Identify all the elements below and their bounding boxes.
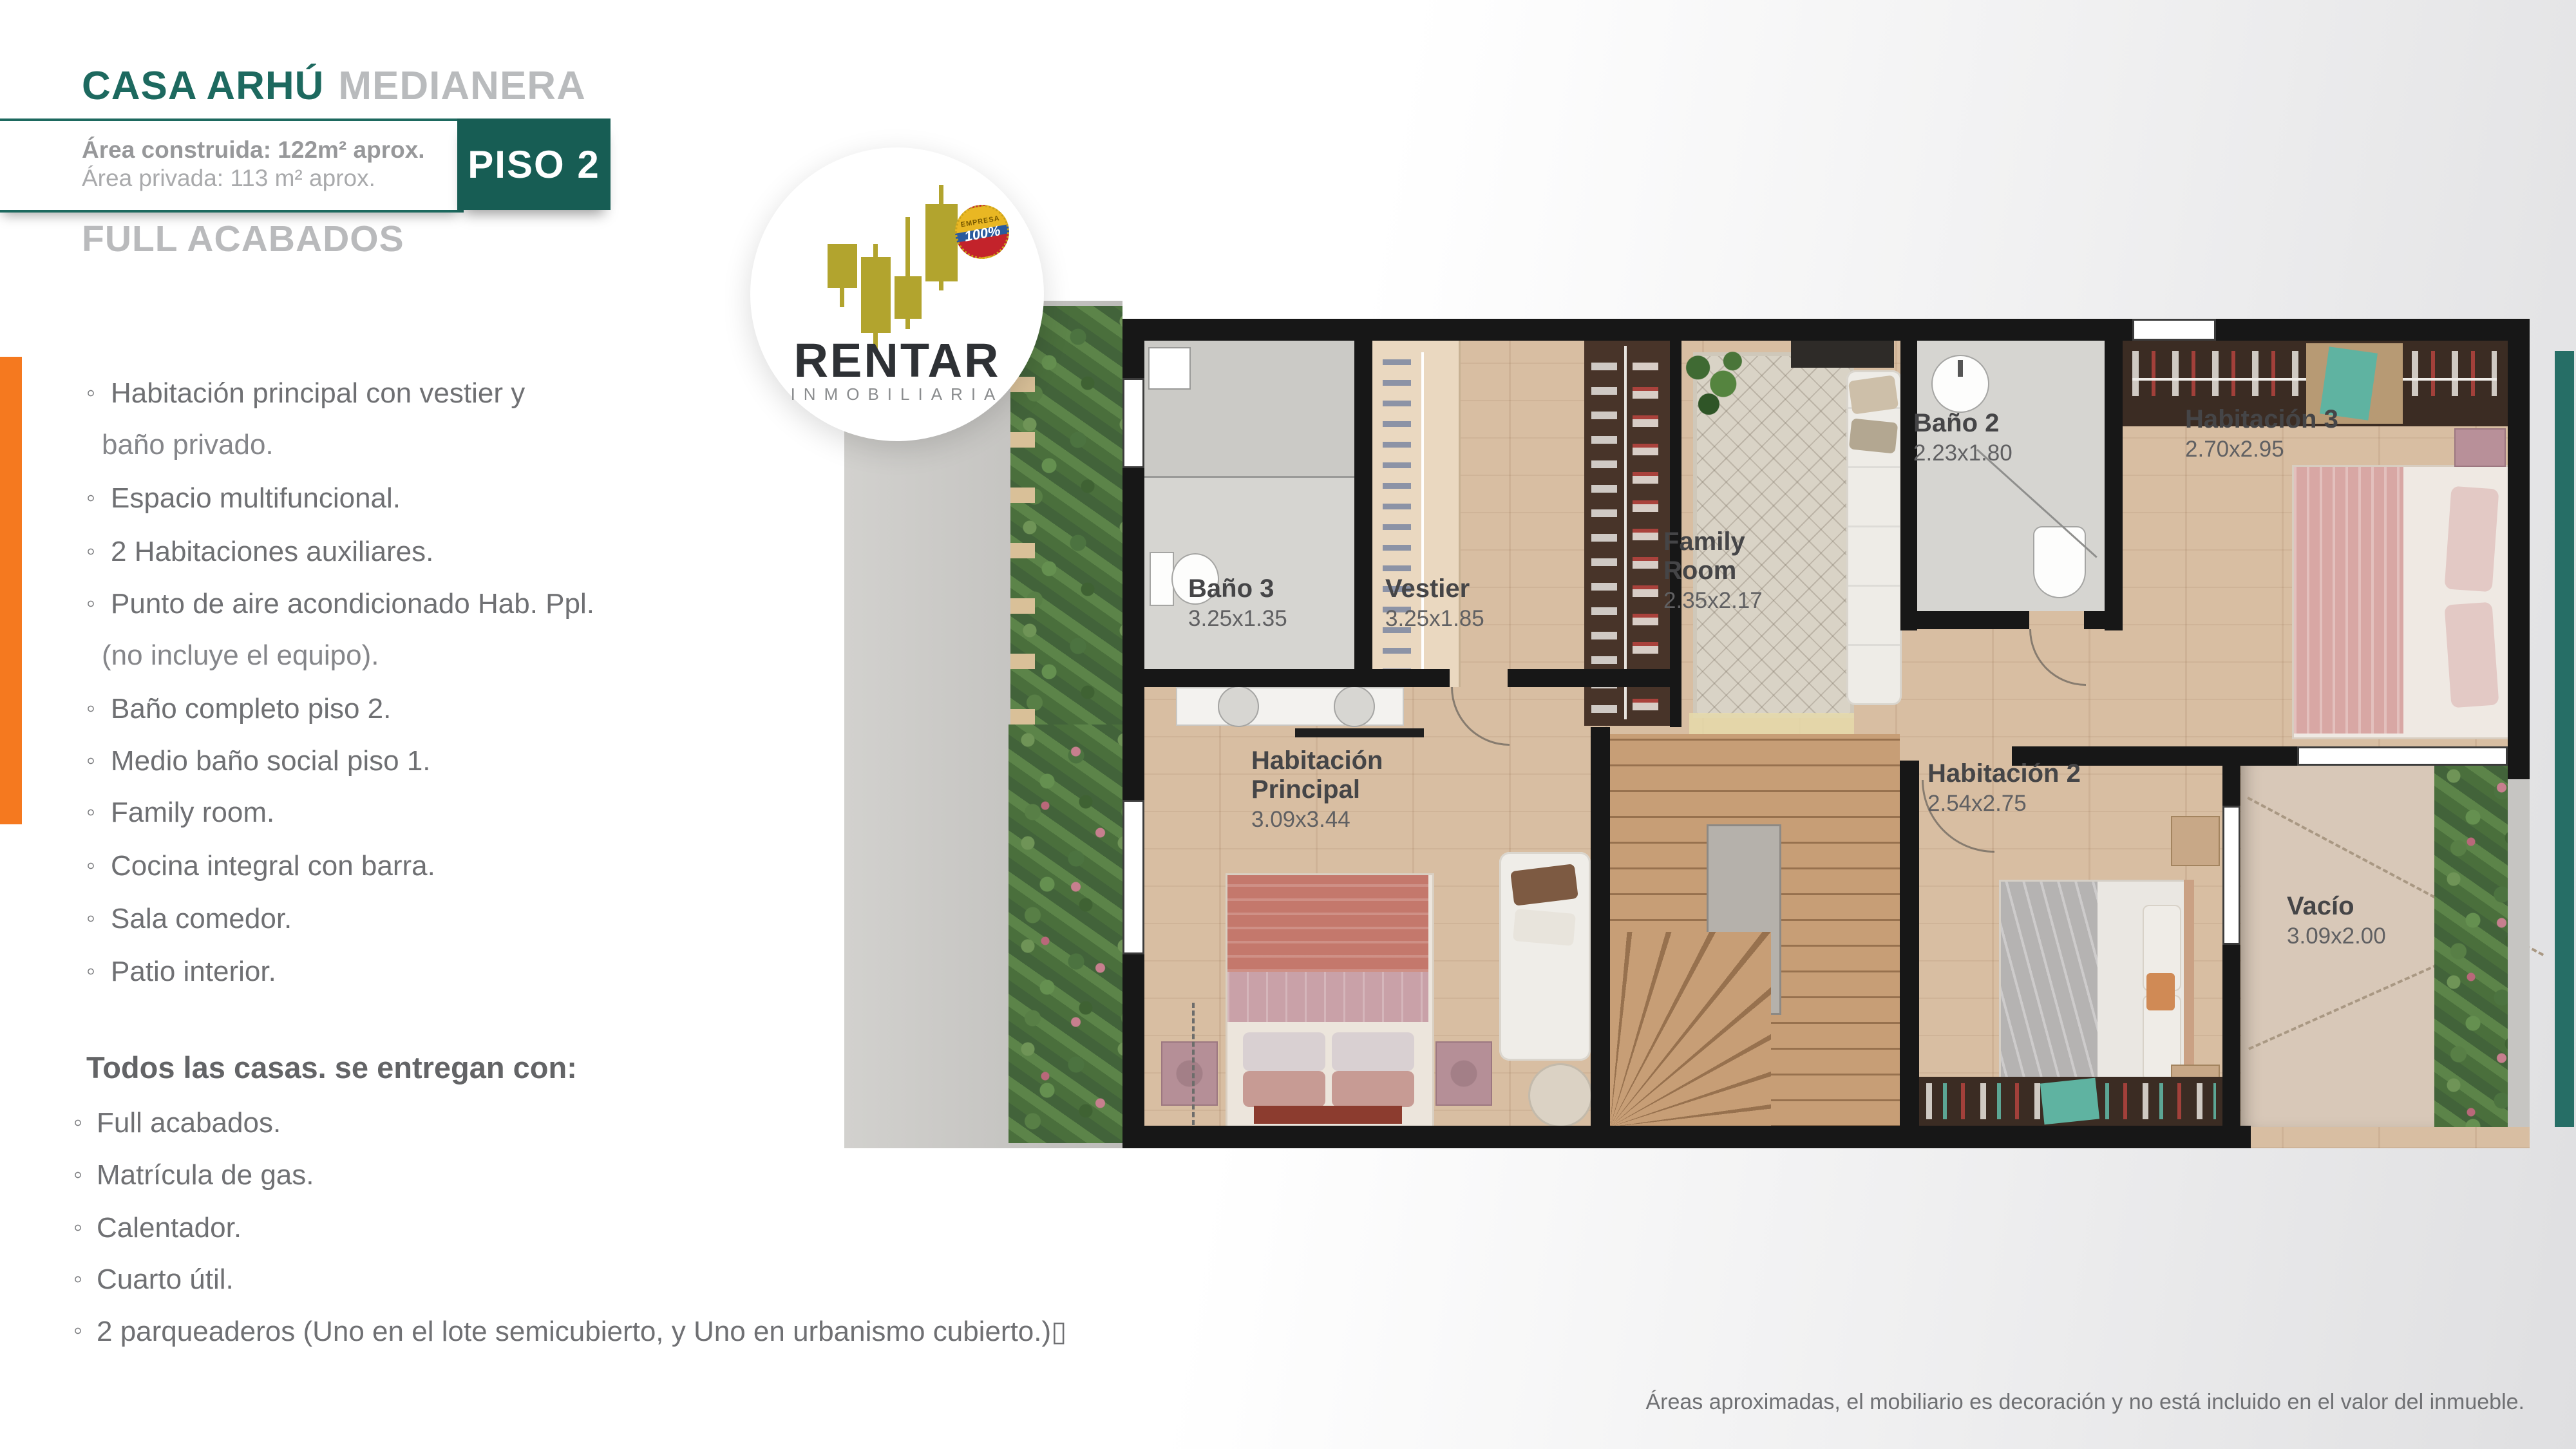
floor-plan: Baño 3 3.25x1.35 Vestier 3.25x1.85 Famil… [844, 301, 2530, 1148]
bullet-icon: ◦ [86, 851, 95, 880]
wall [1508, 669, 1670, 687]
bullet-icon: ◦ [86, 694, 95, 723]
colombia-100-badge: EMPRESA 100% [951, 200, 1013, 263]
feature-item: ◦Habitación principal con vestier y [0, 377, 525, 410]
wall [2222, 761, 2240, 806]
feature-item: ◦Punto de aire acondicionado Hab. Ppl. [0, 588, 594, 620]
logo-brand-text: RENTAR [750, 333, 1044, 388]
feature-item: ◦Sala comedor. [0, 903, 292, 935]
wall [2105, 341, 2123, 630]
room-name: Habitación Principal [1251, 746, 1432, 804]
wall [1354, 341, 1372, 687]
floor-badge: PISO 2 [457, 118, 611, 210]
delivery-text: Cuarto útil. [97, 1264, 234, 1295]
bullet-icon: ◦ [86, 484, 95, 513]
bullet-icon: ◦ [86, 537, 95, 566]
bullet-icon: ◦ [86, 746, 95, 775]
toilet-tank-banio3 [1150, 552, 1174, 606]
wall [2508, 319, 2530, 779]
delivery-text: Matrícula de gas. [97, 1159, 314, 1191]
wall [1900, 341, 1917, 630]
candlestick-bar-icon [895, 276, 922, 319]
sofa-pillow [1849, 418, 1899, 453]
shoes-right [1633, 363, 1658, 710]
accent-bar-right [2555, 351, 2574, 1127]
feature-item: ◦Espacio multifuncional. [0, 482, 401, 515]
room-name: Vacío [2287, 892, 2386, 921]
window [2132, 319, 2216, 341]
feature-text: 2 Habitaciones auxiliares. [111, 536, 433, 567]
feature-item: ◦Cocina integral con barra. [0, 850, 435, 882]
feature-item-cont: (no incluye el equipo). [0, 639, 379, 672]
candlestick-bar-icon [861, 257, 891, 333]
plant [1676, 343, 1748, 424]
bed-habppl-quilt [1227, 972, 1428, 1022]
page-title: CASA ARHÚMEDIANERA [82, 63, 586, 109]
feature-text: Baño completo piso 2. [111, 693, 391, 724]
feature-text: Espacio multifuncional. [111, 482, 401, 514]
shoe-closet-rail [1624, 346, 1627, 719]
candlestick-wick-icon [873, 244, 878, 257]
room-label-vacio: Vacío 3.09x2.00 [2287, 892, 2386, 949]
bullet-icon: ◦ [86, 379, 95, 408]
delivery-text: 2 parqueaderos (Uno en el lote semicubie… [97, 1316, 1066, 1347]
bed-hab3-pillow [2445, 602, 2499, 708]
bed-bench [1254, 1106, 1402, 1124]
wall [2222, 945, 2240, 1127]
feature-text: Patio interior. [111, 956, 276, 987]
pouf [1161, 1041, 1218, 1106]
room-label-family: Family Room 2.35x2.17 [1663, 527, 1805, 613]
delivery-heading: Todos las casas. se entregan con: [86, 1050, 577, 1085]
wall [1900, 611, 2029, 629]
sofa-pillow [1848, 375, 1899, 415]
garden-bottom-left [1009, 724, 1122, 1143]
candlestick-wick-icon [905, 319, 910, 329]
candlestick-wick-icon [939, 281, 943, 290]
pillow [1332, 1032, 1414, 1071]
accent-pillow [2146, 973, 2175, 1010]
logo-tagline-text: INMOBILIARIA [750, 384, 1044, 404]
window [1122, 378, 1144, 468]
toilet-banio2 [2033, 526, 2086, 598]
room-label-hab3: Habitación 3 2.70x2.95 [2185, 405, 2338, 462]
delivery-item: ◦Full acabados. [0, 1107, 281, 1139]
pillow [1243, 1071, 1325, 1107]
room-label-vestier: Vestier 3.25x1.85 [1385, 574, 1484, 631]
finish-label: FULL ACABADOS [82, 218, 404, 260]
candlestick-wick-icon [939, 185, 943, 204]
delivery-text: Full acabados. [97, 1107, 281, 1139]
brochure-page: { "header": { "title": "CASA ARHÚ", "sub… [0, 0, 2576, 1449]
bed-hab3-pillow [2445, 486, 2499, 592]
area-built-text: Área construida: 122m² aprox. [82, 137, 425, 164]
room-label-banio2: Baño 2 2.23x1.80 [1913, 409, 2012, 466]
room-dims: 3.25x1.85 [1385, 606, 1484, 631]
balcony-dashed-line [1192, 1003, 1195, 1125]
round-ottoman [1528, 1063, 1593, 1128]
vanity-sink [1218, 686, 1259, 727]
area-private-text: Área privada: 113 m² aprox. [82, 165, 375, 192]
room-name: Family Room [1663, 527, 1805, 585]
room-dims: 3.09x3.44 [1251, 807, 1432, 832]
room-name: Baño 3 [1188, 574, 1287, 603]
wall [1591, 727, 1610, 1127]
stair-winders [1610, 932, 1771, 1127]
bullet-icon: ◦ [73, 1316, 82, 1345]
tv-console-family [1791, 341, 1894, 368]
candlestick-wick-icon [905, 217, 910, 276]
feature-text: Sala comedor. [111, 903, 292, 934]
room-name: Vestier [1385, 574, 1484, 603]
bullet-icon: ◦ [73, 1213, 82, 1242]
room-label-banio3: Baño 3 3.25x1.35 [1188, 574, 1287, 631]
teal-towel [2040, 1078, 2099, 1125]
project-variant: MEDIANERA [338, 64, 585, 108]
room-dims: 2.35x2.17 [1663, 588, 1805, 613]
candlestick-bar-icon [925, 204, 958, 281]
shoes-left [1591, 352, 1617, 713]
delivery-item: ◦Cuarto útil. [0, 1264, 234, 1296]
project-name: CASA ARHÚ [82, 64, 324, 108]
window [2222, 806, 2240, 945]
room-dims: 3.09x2.00 [2287, 923, 2386, 949]
bed-hab3-blanket [2294, 467, 2403, 734]
feature-item: ◦Family room. [0, 797, 274, 829]
bullet-icon: ◦ [73, 1265, 82, 1294]
bed-habppl-blanket [1227, 875, 1428, 972]
rentar-logo: EMPRESA 100% RENTAR INMOBILIARIA [750, 147, 1044, 441]
faucet [1958, 360, 1963, 377]
pillow [1243, 1032, 1325, 1071]
feature-item: ◦Medio baño social piso 1. [0, 745, 431, 777]
nightstand-hab3 [2454, 428, 2506, 467]
feature-text: Punto de aire acondicionado Hab. Ppl. [111, 588, 594, 620]
disclaimer-text: Áreas aproximadas, el mobiliario es deco… [1645, 1390, 2524, 1415]
candlestick-bar-icon [828, 244, 857, 288]
tv-habppl [1295, 728, 1424, 737]
vanity-sink [1334, 686, 1375, 727]
sink-banio3 [1148, 347, 1191, 390]
bullet-icon: ◦ [86, 957, 95, 986]
bullet-icon: ◦ [86, 798, 95, 827]
room-name: Habitación 2 [1927, 759, 2081, 788]
room-label-hab2: Habitación 2 2.54x2.75 [1927, 759, 2081, 816]
feature-text: Habitación principal con vestier y [111, 377, 525, 409]
wall [2084, 611, 2123, 629]
wall [1122, 1126, 2251, 1148]
room-dims: 2.70x2.95 [2185, 437, 2338, 462]
room-dims: 3.25x1.35 [1188, 606, 1287, 631]
feature-text: Family room. [111, 797, 274, 828]
room-dims: 2.54x2.75 [1927, 791, 2081, 816]
feature-item-cont: baño privado. [0, 429, 274, 461]
candlestick-wick-icon [840, 288, 844, 307]
feature-item: ◦Baño completo piso 2. [0, 693, 391, 725]
wall [1144, 669, 1450, 687]
feature-item: ◦2 Habitaciones auxiliares. [0, 536, 433, 568]
window [1122, 800, 1144, 954]
pouf [1435, 1041, 1492, 1106]
concrete-right [2508, 761, 2530, 1127]
feature-text: Cocina integral con barra. [111, 850, 435, 882]
garden-vacio [2434, 761, 2508, 1127]
sofa-pillow [1513, 909, 1576, 946]
nightstand-hab2 [2171, 816, 2220, 866]
bullet-icon: ◦ [86, 904, 95, 933]
feature-text: Medio baño social piso 1. [111, 745, 431, 777]
room-name: Habitación 3 [2185, 405, 2338, 434]
room-name: Baño 2 [1913, 409, 2012, 438]
window [2297, 746, 2508, 766]
bullet-icon: ◦ [73, 1108, 82, 1137]
bullet-icon: ◦ [73, 1160, 82, 1189]
delivery-text: Calentador. [97, 1212, 241, 1244]
room-dims: 2.23x1.80 [1913, 440, 2012, 466]
wall [1900, 761, 1919, 1126]
bullet-icon: ◦ [86, 589, 95, 618]
delivery-item: ◦2 parqueaderos (Uno en el lote semicubi… [0, 1315, 1066, 1348]
delivery-item: ◦Matrícula de gas. [0, 1159, 314, 1191]
feature-item: ◦Patio interior. [0, 956, 276, 988]
delivery-item: ◦Calentador. [0, 1212, 241, 1244]
room-label-habppl: Habitación Principal 3.09x3.44 [1251, 746, 1432, 832]
wall [1122, 319, 2530, 341]
pillow [1332, 1071, 1414, 1107]
